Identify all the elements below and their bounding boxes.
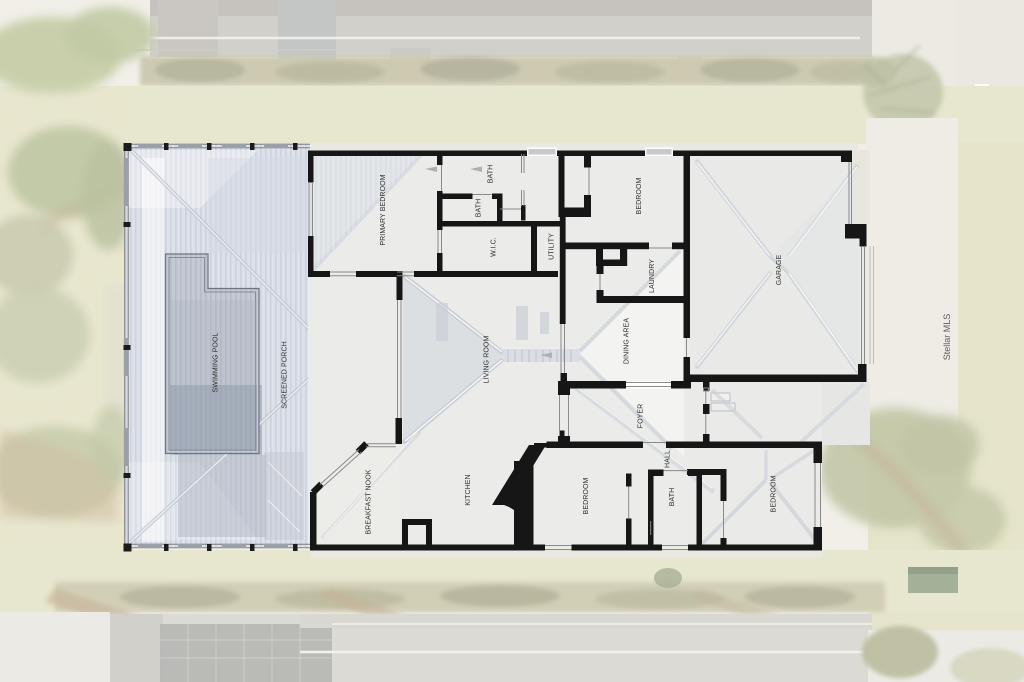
- svg-text:W.I.C.: W.I.C.: [491, 237, 498, 257]
- svg-text:DINING AREA: DINING AREA: [624, 318, 631, 364]
- svg-text:SWIMMING POOL: SWIMMING POOL: [213, 332, 220, 392]
- svg-text:PRIMARY BEDROOM: PRIMARY BEDROOM: [380, 174, 387, 245]
- svg-text:LIVING ROOM: LIVING ROOM: [484, 336, 491, 384]
- svg-text:Stellar MLS: Stellar MLS: [942, 314, 952, 361]
- svg-text:HALL: HALL: [665, 450, 672, 468]
- svg-text:BEDROOM: BEDROOM: [583, 477, 590, 514]
- svg-text:KITCHEN: KITCHEN: [465, 474, 472, 505]
- svg-text:BATH: BATH: [488, 165, 495, 184]
- svg-text:UTILITY: UTILITY: [549, 233, 556, 260]
- svg-text:SCREENED PORCH: SCREENED PORCH: [282, 341, 289, 409]
- svg-text:LAUNDRY: LAUNDRY: [649, 259, 656, 293]
- svg-text:GARAGE: GARAGE: [776, 254, 783, 285]
- svg-text:BEDROOM: BEDROOM: [636, 177, 643, 214]
- svg-text:BREAKFAST NOOK: BREAKFAST NOOK: [366, 469, 373, 534]
- svg-text:BEDROOM: BEDROOM: [771, 475, 778, 512]
- svg-text:FOYER: FOYER: [638, 404, 645, 429]
- svg-text:BATH: BATH: [669, 488, 676, 507]
- svg-text:BATH: BATH: [476, 199, 483, 218]
